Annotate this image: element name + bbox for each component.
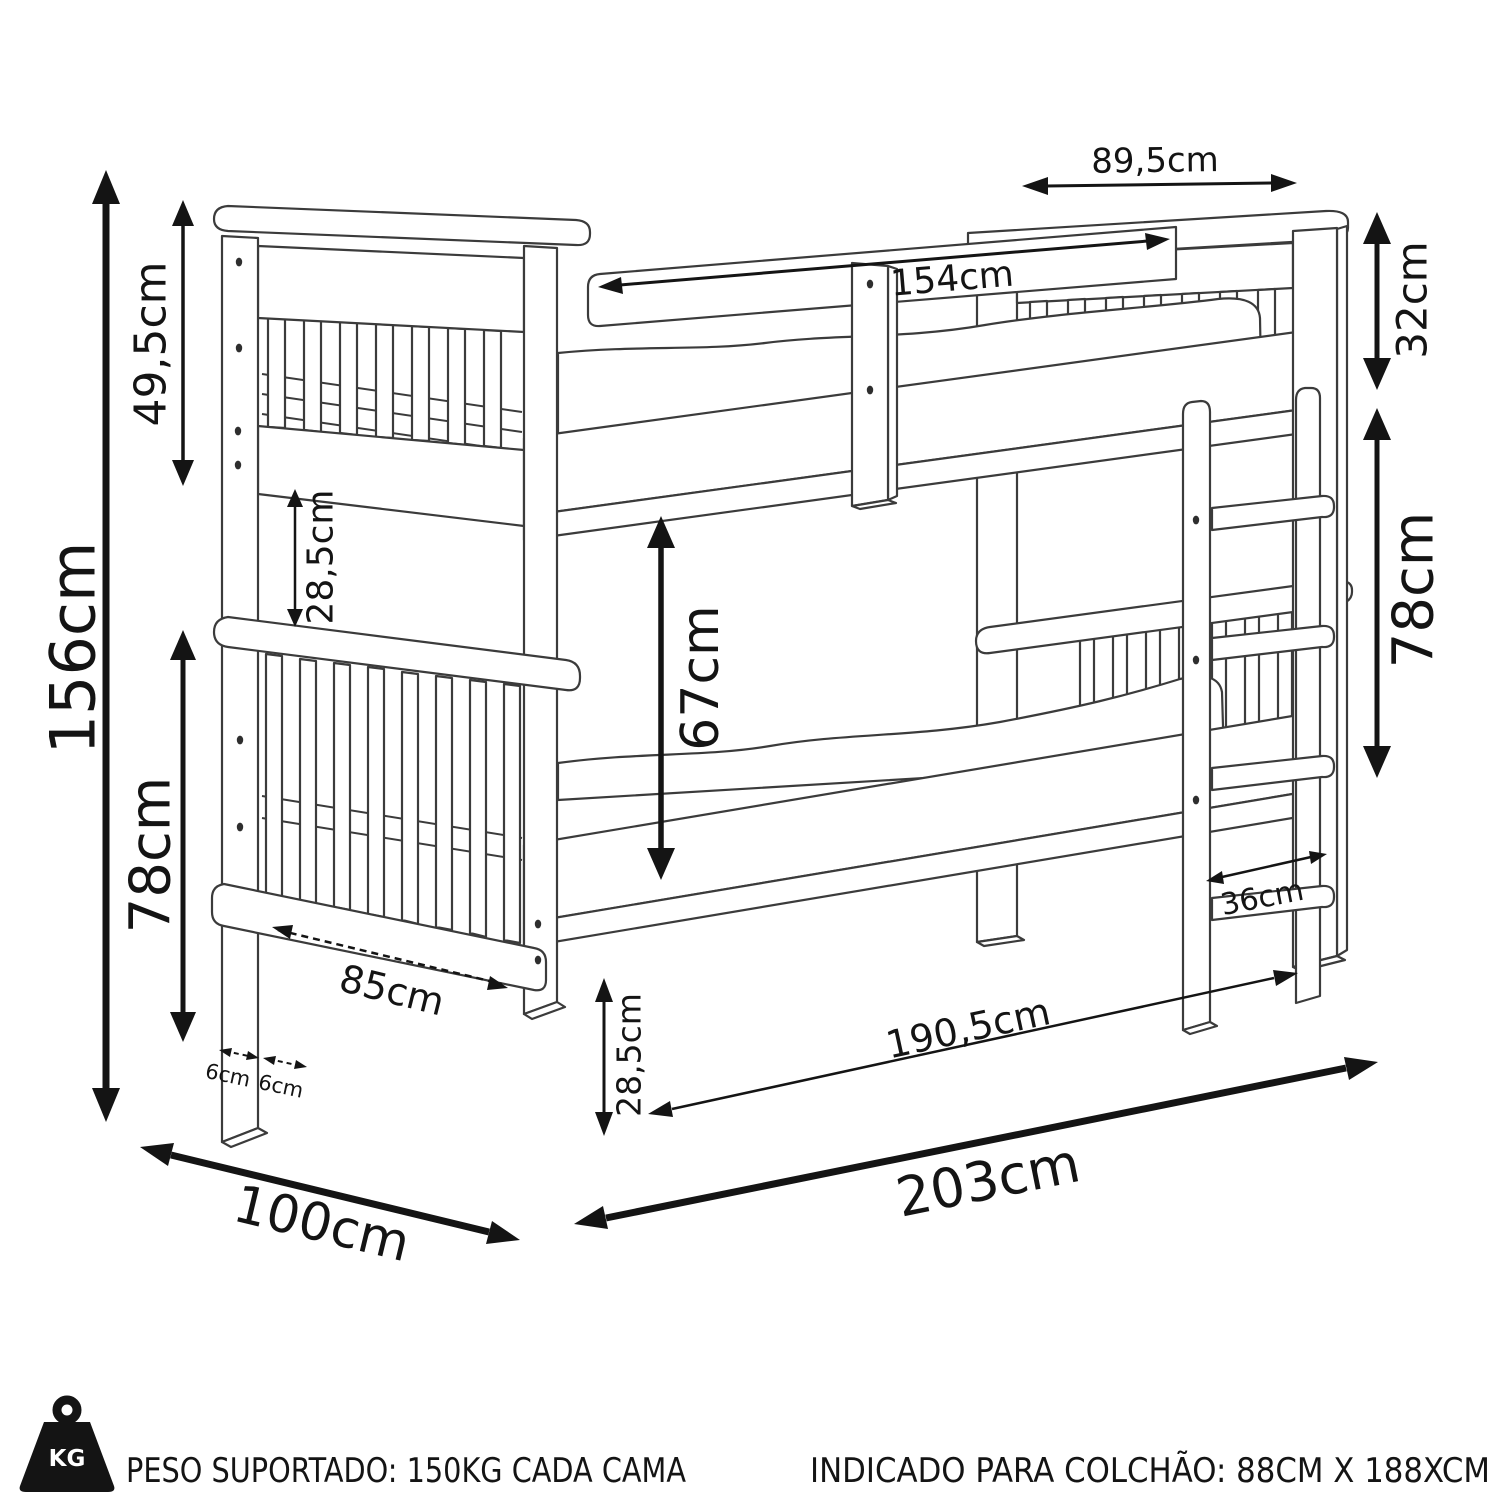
- left-headboard-cap: [214, 206, 590, 245]
- dimension-total-depth: 100cm: [140, 1143, 520, 1274]
- dimension-rail-to-mattress: 32cm: [1363, 212, 1437, 390]
- dimension-headboard-gap: 28,5cm: [287, 489, 342, 627]
- left-headboard-upper-slats: [268, 318, 501, 448]
- dimension-lower-headboard-height: 78cm: [119, 630, 196, 1042]
- bunk-bed-diagram-page: 156cm 49,5cm 28,5cm 78cm 67cm 154cm 89,5…: [0, 0, 1500, 1500]
- dim-upper-headboard-height-label: 49,5cm: [125, 261, 176, 426]
- guard-rail-center-post: [852, 263, 897, 509]
- dimension-total-height: 156cm: [37, 170, 120, 1122]
- dim-base-height-label: 28,5cm: [610, 993, 649, 1117]
- dim-rail-to-mattress-label: 32cm: [1388, 241, 1437, 358]
- dimension-headboard-width: 89,5cm: [1022, 140, 1297, 195]
- dimension-base-height: 28,5cm: [595, 978, 649, 1136]
- dim-headboard-width-label: 89,5cm: [1091, 140, 1219, 182]
- supported-weight-text: PESO SUPORTADO: 150KG CADA CAMA: [126, 1451, 686, 1491]
- right-front-post-side: [1337, 226, 1347, 956]
- dim-ladder-height-label: 78cm: [1382, 512, 1447, 669]
- dimension-total-length: 203cm: [574, 1057, 1378, 1230]
- footer: KG PESO SUPORTADO: 150KG CADA CAMA INDIC…: [20, 1400, 1490, 1492]
- dimension-ladder-height: 78cm: [1363, 408, 1447, 778]
- dim-side-leg-depth-label: 6cm: [256, 1070, 305, 1103]
- ladder-left-stile: [1183, 401, 1210, 1030]
- dim-bunk-clearance-label: 67cm: [671, 605, 731, 750]
- kg-weight-icon: KG: [20, 1400, 115, 1492]
- dimension-side-leg-depth: 6cm: [256, 1056, 307, 1103]
- left-headboard-top-rail: [258, 246, 524, 332]
- dim-mattress-length-label: 190,5cm: [882, 989, 1054, 1067]
- mattress-recommendation-text: INDICADO PARA COLCHÃO: 88CM X 188XCM: [810, 1451, 1490, 1491]
- left-back-post: [524, 246, 557, 1014]
- bunk-bed-dimension-drawing: 156cm 49,5cm 28,5cm 78cm 67cm 154cm 89,5…: [0, 0, 1500, 1500]
- dimension-upper-headboard-height: 49,5cm: [125, 200, 194, 486]
- left-front-post: [222, 236, 258, 1142]
- dim-total-height-label: 156cm: [37, 542, 110, 755]
- kg-badge-label: KG: [49, 1446, 86, 1472]
- dim-lower-headboard-height-label: 78cm: [119, 777, 184, 934]
- dim-headboard-gap-label: 28,5cm: [301, 489, 342, 624]
- dim-total-length-label: 203cm: [891, 1131, 1085, 1229]
